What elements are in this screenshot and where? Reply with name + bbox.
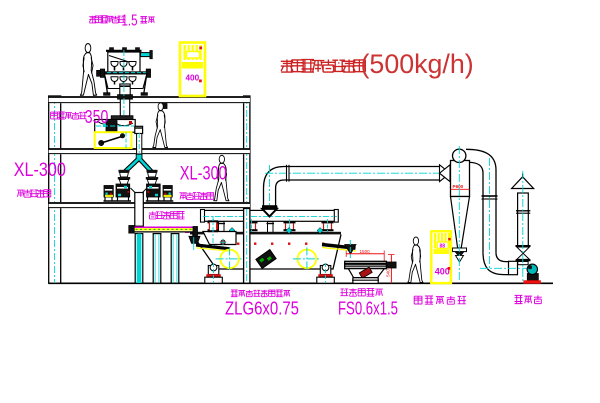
svg-text:FS0.6x1.5: FS0.6x1.5	[338, 299, 398, 319]
svg-text:540: 540	[386, 269, 391, 277]
svg-text:400: 400	[435, 267, 450, 277]
svg-text:XL-300: XL-300	[180, 163, 227, 185]
svg-text:P600: P600	[453, 184, 464, 189]
svg-text:88: 88	[440, 244, 446, 250]
svg-text:XL-300: XL-300	[14, 159, 66, 181]
svg-text:400: 400	[186, 74, 200, 83]
svg-text:(500kg/h): (500kg/h)	[361, 49, 474, 79]
svg-text:ZLG6x0.75: ZLG6x0.75	[225, 299, 299, 319]
svg-text:1500: 1500	[360, 249, 371, 254]
svg-text:1.5: 1.5	[122, 13, 138, 30]
svg-text:350: 350	[85, 107, 109, 127]
